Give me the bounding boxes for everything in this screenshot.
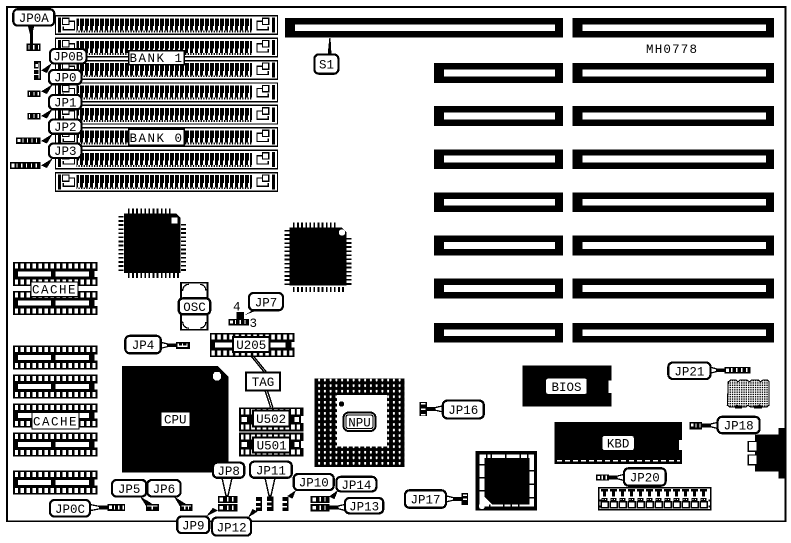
svg-text:CACHE: CACHE [32, 284, 77, 298]
svg-text:OSC: OSC [183, 301, 206, 315]
svg-text:BANK 1: BANK 1 [129, 52, 183, 66]
svg-text:JP21: JP21 [674, 365, 704, 379]
svg-text:JP12: JP12 [217, 521, 247, 535]
svg-text:JP5: JP5 [118, 483, 141, 497]
svg-text:JP7: JP7 [255, 296, 278, 310]
svg-text:JP20: JP20 [630, 472, 660, 486]
svg-text:JP8: JP8 [217, 465, 240, 479]
svg-text:3: 3 [250, 317, 258, 331]
svg-text:JP4: JP4 [132, 339, 155, 353]
svg-text:JP1: JP1 [54, 97, 77, 111]
svg-text:JP9: JP9 [182, 519, 205, 533]
svg-text:JP10: JP10 [299, 477, 329, 491]
svg-text:JP0: JP0 [54, 72, 77, 86]
svg-text:U205: U205 [236, 339, 266, 353]
svg-text:BANK 0: BANK 0 [129, 132, 183, 146]
svg-text:NPU: NPU [348, 416, 371, 430]
svg-text:JP14: JP14 [341, 479, 371, 493]
svg-text:CPU: CPU [164, 414, 187, 428]
svg-text:JP18: JP18 [724, 420, 754, 434]
svg-text:U502: U502 [256, 413, 286, 427]
svg-text:BIOS: BIOS [551, 381, 581, 395]
svg-text:JP17: JP17 [410, 494, 440, 508]
svg-text:MH0778: MH0778 [646, 43, 698, 57]
svg-text:JP2: JP2 [54, 121, 77, 135]
svg-text:KBD: KBD [607, 438, 630, 452]
svg-text:JP3: JP3 [54, 145, 77, 159]
svg-text:JP0C: JP0C [55, 503, 85, 517]
svg-text:JP6: JP6 [153, 483, 176, 497]
svg-text:JP0A: JP0A [19, 12, 50, 26]
svg-text:U501: U501 [257, 440, 287, 454]
svg-text:JP11: JP11 [256, 464, 286, 478]
svg-text:TAG: TAG [252, 376, 275, 390]
svg-text:JP0B: JP0B [53, 51, 84, 65]
svg-text:CACHE: CACHE [33, 416, 78, 430]
svg-text:JP16: JP16 [448, 404, 478, 418]
svg-text:S1: S1 [319, 59, 334, 73]
svg-text:JP13: JP13 [349, 500, 379, 514]
